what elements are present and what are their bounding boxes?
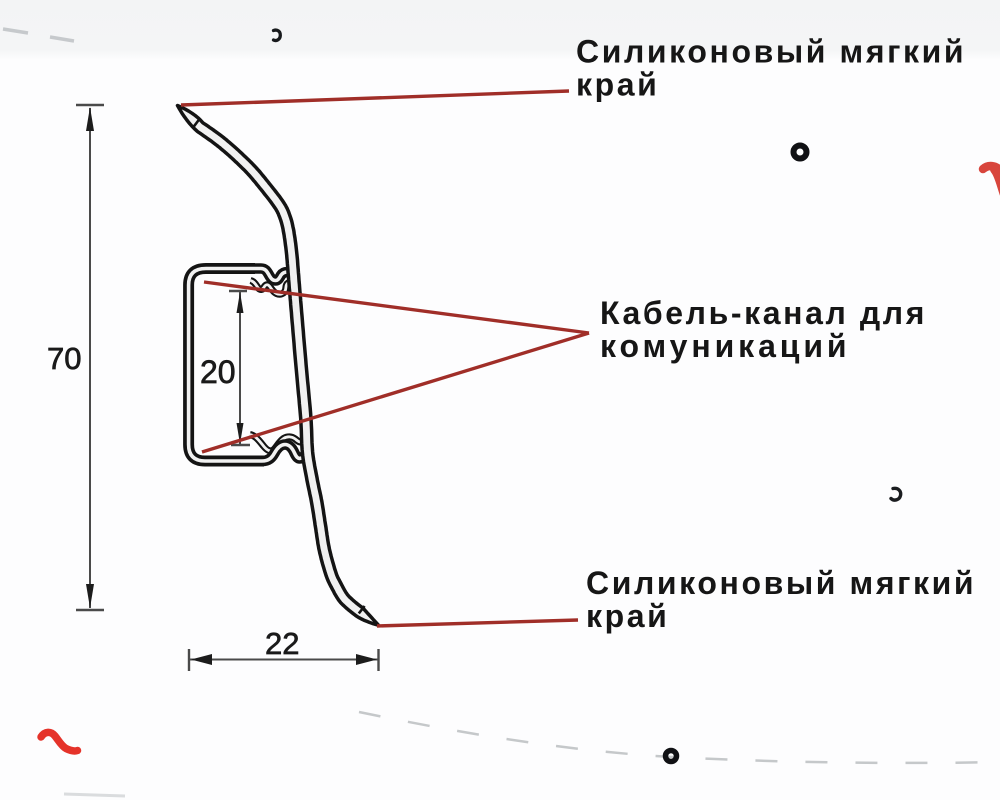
svg-text:Кабель-канал для: Кабель-канал для	[600, 295, 927, 331]
svg-text:край: край	[586, 598, 669, 634]
svg-text:комуникаций: комуникаций	[600, 328, 851, 364]
svg-text:20: 20	[200, 354, 236, 390]
svg-text:край: край	[576, 67, 659, 103]
svg-text:Силиконовый мягкий: Силиконовый мягкий	[586, 565, 976, 601]
svg-text:Силиконовый мягкий: Силиконовый мягкий	[576, 34, 966, 70]
svg-text:22: 22	[265, 626, 299, 661]
svg-text:70: 70	[47, 341, 81, 376]
